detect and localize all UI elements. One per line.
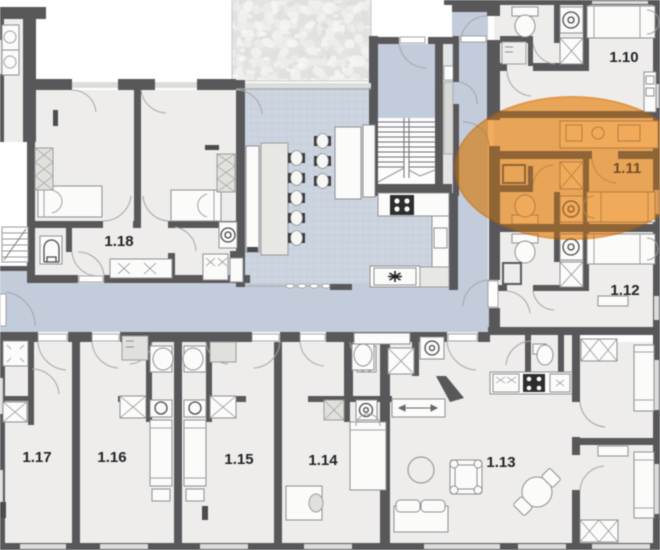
svg-text:1.16: 1.16: [97, 449, 126, 466]
svg-text:1.15: 1.15: [224, 451, 253, 468]
svg-text:1.13: 1.13: [486, 454, 515, 471]
svg-text:1.14: 1.14: [308, 452, 338, 469]
svg-text:1.12: 1.12: [610, 282, 639, 299]
svg-text:1.18: 1.18: [104, 233, 133, 250]
svg-text:1.10: 1.10: [609, 49, 638, 66]
svg-text:1.17: 1.17: [22, 449, 51, 466]
